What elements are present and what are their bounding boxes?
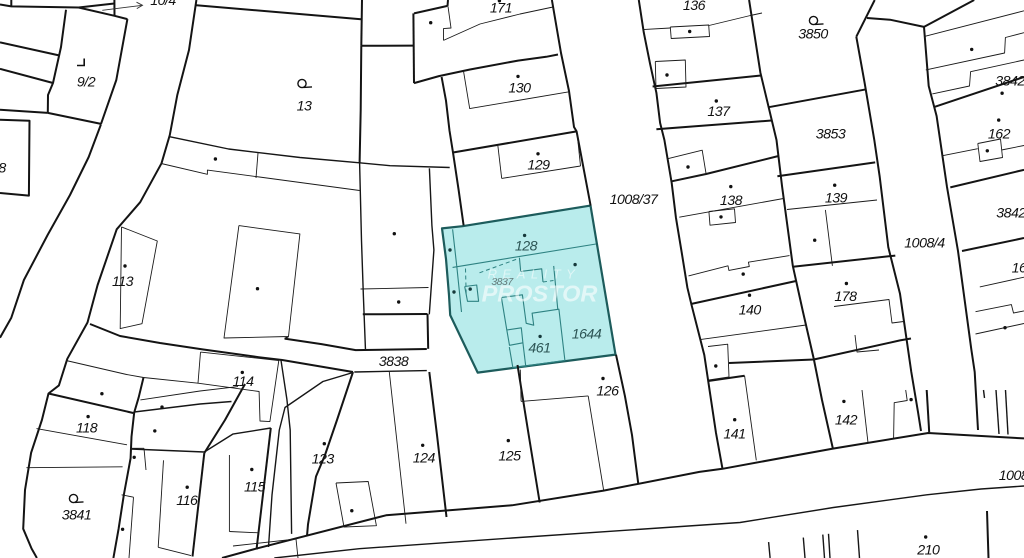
svg-text:125: 125 <box>498 449 521 465</box>
svg-text:123: 123 <box>312 452 335 468</box>
svg-text:1008: 1008 <box>999 468 1024 484</box>
svg-text:1008/37: 1008/37 <box>610 192 659 208</box>
svg-text:113: 113 <box>112 274 134 290</box>
svg-text:129: 129 <box>527 158 550 174</box>
svg-text:141: 141 <box>723 427 745 443</box>
svg-text:126: 126 <box>596 384 619 400</box>
svg-text:137: 137 <box>707 104 731 120</box>
svg-text:118: 118 <box>76 421 98 437</box>
svg-text:3841: 3841 <box>62 508 92 524</box>
svg-text:114: 114 <box>232 374 254 390</box>
svg-text:178: 178 <box>834 289 857 305</box>
svg-text:3838: 3838 <box>379 354 409 370</box>
svg-text:3842: 3842 <box>995 74 1024 90</box>
svg-text:16: 16 <box>1012 261 1024 277</box>
svg-text:REALITY: REALITY <box>488 267 581 282</box>
svg-text:8: 8 <box>0 161 6 177</box>
svg-text:1008/4: 1008/4 <box>904 236 945 252</box>
svg-text:3842: 3842 <box>996 206 1024 222</box>
svg-text:136: 136 <box>683 0 706 14</box>
svg-text:1644: 1644 <box>572 327 602 343</box>
svg-text:3850: 3850 <box>798 27 828 43</box>
svg-text:138: 138 <box>720 193 743 209</box>
svg-text:PROSTOR: PROSTOR <box>482 281 598 307</box>
svg-text:162: 162 <box>988 127 1011 143</box>
svg-text:171: 171 <box>490 1 512 17</box>
svg-text:140: 140 <box>739 303 762 319</box>
svg-text:461: 461 <box>528 341 550 357</box>
svg-text:210: 210 <box>916 543 940 558</box>
svg-text:139: 139 <box>825 191 848 207</box>
svg-text:116: 116 <box>176 493 198 509</box>
svg-text:9/2: 9/2 <box>77 75 96 91</box>
svg-text:130: 130 <box>508 81 531 97</box>
svg-text:3853: 3853 <box>816 127 846 143</box>
svg-text:142: 142 <box>835 413 858 429</box>
svg-text:10/4: 10/4 <box>150 0 176 9</box>
svg-text:124: 124 <box>413 451 436 467</box>
svg-text:115: 115 <box>244 480 266 496</box>
svg-text:13: 13 <box>297 99 312 115</box>
svg-text:128: 128 <box>515 239 538 255</box>
